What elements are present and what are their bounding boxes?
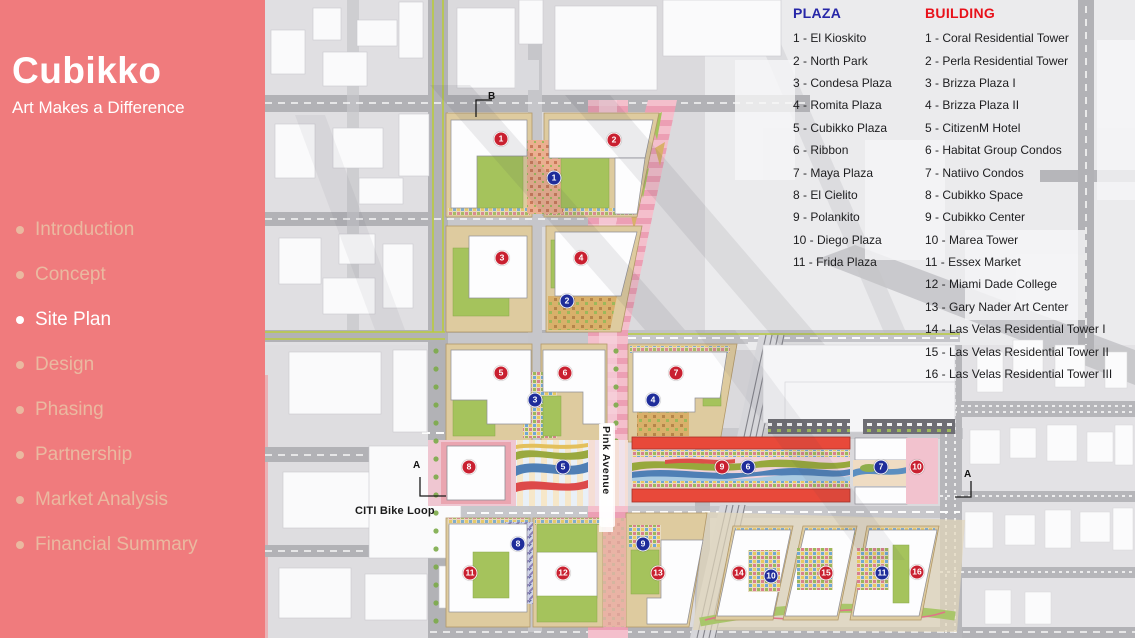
- bullet-icon: [16, 316, 24, 324]
- legend-item: 4 - Romita Plaza: [793, 94, 892, 116]
- plaza-legend-title: PLAZA: [793, 5, 892, 21]
- building-marker-7: 7: [669, 366, 684, 381]
- bullet-icon: [16, 226, 24, 234]
- plaza-marker-9: 9: [636, 537, 651, 552]
- sidebar-item-concept[interactable]: Concept: [0, 263, 265, 286]
- sidebar-item-label: Concept: [35, 263, 106, 286]
- legend-item: 1 - Coral Residential Tower: [925, 27, 1112, 49]
- sidebar-nav: Introduction Concept Site Plan Design Ph…: [0, 218, 265, 578]
- plaza-legend: PLAZA 1 - El Kioskito 2 - North Park 3 -…: [793, 5, 892, 273]
- building-marker-13: 13: [651, 566, 666, 581]
- legend-item: 2 - North Park: [793, 49, 892, 71]
- building-legend-title: BUILDING: [925, 5, 1112, 21]
- bullet-icon: [16, 541, 24, 549]
- legend-item: 4 - Brizza Plaza II: [925, 94, 1112, 116]
- sidebar-item-introduction[interactable]: Introduction: [0, 218, 265, 241]
- legend-item: 7 - Maya Plaza: [793, 161, 892, 183]
- legend-item: 16 - Las Velas Residential Tower III: [925, 363, 1112, 385]
- legend-item: 8 - Cubikko Space: [925, 184, 1112, 206]
- building-marker-16: 16: [910, 565, 925, 580]
- building-marker-2: 2: [607, 133, 622, 148]
- building-marker-1: 1: [494, 132, 509, 147]
- plaza-marker-5: 5: [556, 460, 571, 475]
- sidebar: Cubikko Art Makes a Difference Introduct…: [0, 0, 265, 638]
- building-marker-10: 10: [910, 460, 925, 475]
- pink-avenue-label: Pink Avenue: [599, 424, 613, 532]
- plaza-marker-1: 1: [547, 171, 562, 186]
- plaza-marker-8: 8: [511, 537, 526, 552]
- sidebar-item-label: Phasing: [35, 398, 104, 421]
- plaza-marker-11: 11: [875, 566, 890, 581]
- site-plan-slide: Cubikko Art Makes a Difference Introduct…: [0, 0, 1135, 638]
- legend-item: 9 - Cubikko Center: [925, 206, 1112, 228]
- plaza-marker-6: 6: [741, 460, 756, 475]
- legend-item: 8 - El Cielito: [793, 184, 892, 206]
- legend-item: 5 - CitizenM Hotel: [925, 117, 1112, 139]
- building-marker-15: 15: [819, 566, 834, 581]
- legend-item: 15 - Las Velas Residential Tower II: [925, 340, 1112, 362]
- building-legend: BUILDING 1 - Coral Residential Tower 2 -…: [925, 5, 1112, 385]
- sidebar-item-market-analysis[interactable]: Market Analysis: [0, 488, 265, 511]
- bullet-icon: [16, 496, 24, 504]
- legend-item: 6 - Habitat Group Condos: [925, 139, 1112, 161]
- plaza-marker-10: 10: [764, 569, 779, 584]
- plaza-marker-7: 7: [874, 460, 889, 475]
- plaza-marker-3: 3: [528, 393, 543, 408]
- sidebar-item-label: Partnership: [35, 443, 132, 466]
- legend-item: 3 - Condesa Plaza: [793, 72, 892, 94]
- bullet-icon: [16, 361, 24, 369]
- page-subtitle: Art Makes a Difference: [0, 92, 265, 118]
- legend-item: 9 - Polankito: [793, 206, 892, 228]
- legend-item: 14 - Las Velas Residential Tower I: [925, 318, 1112, 340]
- plaza-legend-list: 1 - El Kioskito 2 - North Park 3 - Conde…: [793, 27, 892, 273]
- sidebar-item-label: Design: [35, 353, 94, 376]
- building-marker-8: 8: [462, 460, 477, 475]
- building-marker-3: 3: [495, 251, 510, 266]
- building-legend-list: 1 - Coral Residential Tower 2 - Perla Re…: [925, 27, 1112, 385]
- building-marker-9: 9: [715, 460, 730, 475]
- legend-item: 7 - Natiivo Condos: [925, 161, 1112, 183]
- sidebar-item-label: Financial Summary: [35, 533, 198, 556]
- legend-item: 10 - Diego Plaza: [793, 229, 892, 251]
- bullet-icon: [16, 451, 24, 459]
- legend-item: 5 - Cubikko Plaza: [793, 117, 892, 139]
- building-marker-14: 14: [732, 566, 747, 581]
- plaza-marker-2: 2: [560, 294, 575, 309]
- site-plan-map: Pink Avenue CITI Bike Loop B A A 1234567…: [265, 0, 1135, 638]
- page-title: Cubikko: [0, 0, 265, 92]
- citi-bike-loop-label: CITI Bike Loop: [355, 505, 435, 517]
- legend-item: 1 - El Kioskito: [793, 27, 892, 49]
- section-marker-a-left: A: [413, 460, 420, 471]
- plaza-marker-4: 4: [646, 393, 661, 408]
- legend-item: 10 - Marea Tower: [925, 229, 1112, 251]
- sidebar-item-label: Site Plan: [35, 308, 111, 331]
- section-marker-a-right: A: [964, 469, 971, 480]
- legend-item: 11 - Frida Plaza: [793, 251, 892, 273]
- bullet-icon: [16, 271, 24, 279]
- sidebar-item-label: Market Analysis: [35, 488, 168, 511]
- building-marker-12: 12: [556, 566, 571, 581]
- section-marker-b: B: [488, 91, 495, 102]
- sidebar-item-partnership[interactable]: Partnership: [0, 443, 265, 466]
- legend-item: 6 - Ribbon: [793, 139, 892, 161]
- legend-item: 12 - Miami Dade College: [925, 273, 1112, 295]
- bullet-icon: [16, 406, 24, 414]
- legend-item: 13 - Gary Nader Art Center: [925, 296, 1112, 318]
- sidebar-item-design[interactable]: Design: [0, 353, 265, 376]
- sidebar-item-financial-summary[interactable]: Financial Summary: [0, 533, 265, 556]
- legend-item: 3 - Brizza Plaza I: [925, 72, 1112, 94]
- building-marker-5: 5: [494, 366, 509, 381]
- sidebar-item-label: Introduction: [35, 218, 134, 241]
- building-marker-6: 6: [558, 366, 573, 381]
- legend-item: 11 - Essex Market: [925, 251, 1112, 273]
- sidebar-item-site-plan[interactable]: Site Plan: [0, 308, 265, 331]
- sidebar-item-phasing[interactable]: Phasing: [0, 398, 265, 421]
- building-marker-11: 11: [463, 566, 478, 581]
- building-marker-4: 4: [574, 251, 589, 266]
- legend-item: 2 - Perla Residential Tower: [925, 49, 1112, 71]
